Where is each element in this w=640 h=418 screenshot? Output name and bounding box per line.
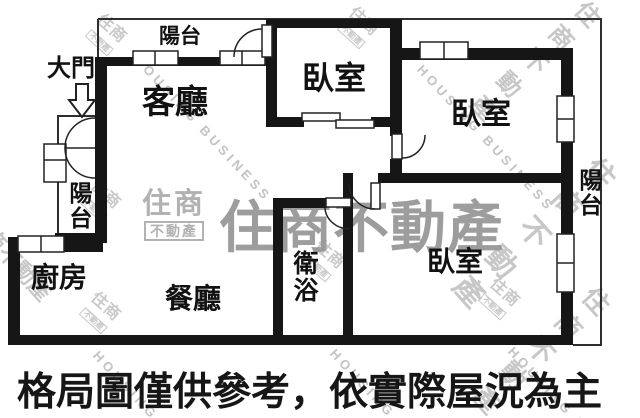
room-label-bedroom-top: 臥室 [302, 61, 366, 96]
room-label-kitchen: 廚房 [31, 263, 87, 293]
disclaimer-text: 格局圖僅供參考，依實際屋況為主 [17, 361, 602, 417]
room-label-main-door: 大門 [47, 56, 95, 82]
room-label-bedroom-bottom: 臥室 [427, 247, 483, 277]
room-label-dining: 餐廳 [165, 284, 221, 314]
room-label-bedroom-right: 臥室 [451, 99, 511, 131]
room-label-balcony-left: 陽台 [66, 181, 91, 231]
room-label-balcony-top: 陽台 [159, 26, 201, 49]
room-label-balcony-right: 陽台 [576, 168, 601, 218]
room-label-living: 客廳 [142, 84, 208, 120]
floorplan-drawing [0, 0, 640, 356]
floorplan-page: HOUSING BUSINESS HOUSING BUSINESS HOUSIN… [0, 0, 640, 418]
main-door-arrow-icon [69, 84, 95, 117]
room-label-bath: 衛浴 [290, 250, 317, 304]
